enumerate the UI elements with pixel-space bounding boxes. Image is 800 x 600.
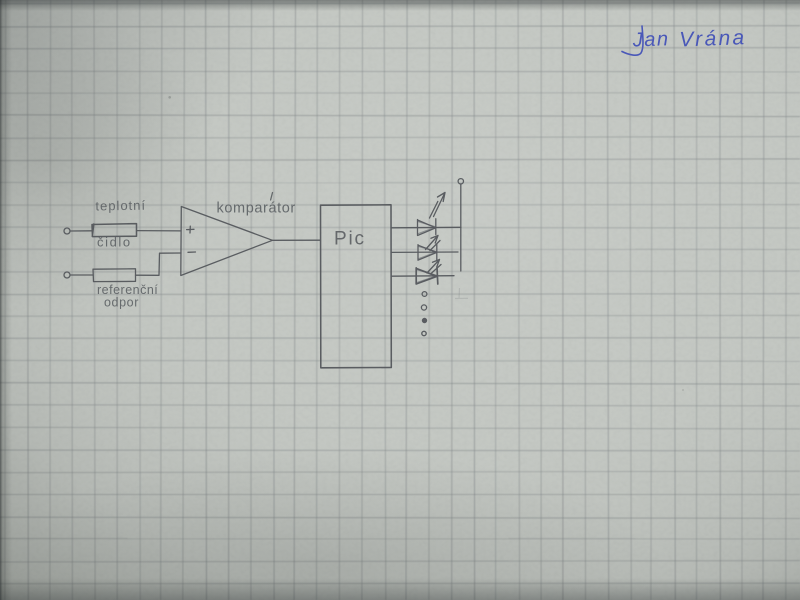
svg-text:komparátor: komparátor	[217, 201, 296, 217]
svg-text:odpor: odpor	[104, 296, 139, 310]
svg-text:Vrána: Vrána	[679, 26, 747, 51]
svg-text:Pic: Pic	[334, 229, 366, 250]
svg-text:čidlo: čidlo	[97, 235, 132, 250]
svg-text:teplotní: teplotní	[95, 198, 146, 214]
svg-text:Jan: Jan	[631, 28, 669, 51]
